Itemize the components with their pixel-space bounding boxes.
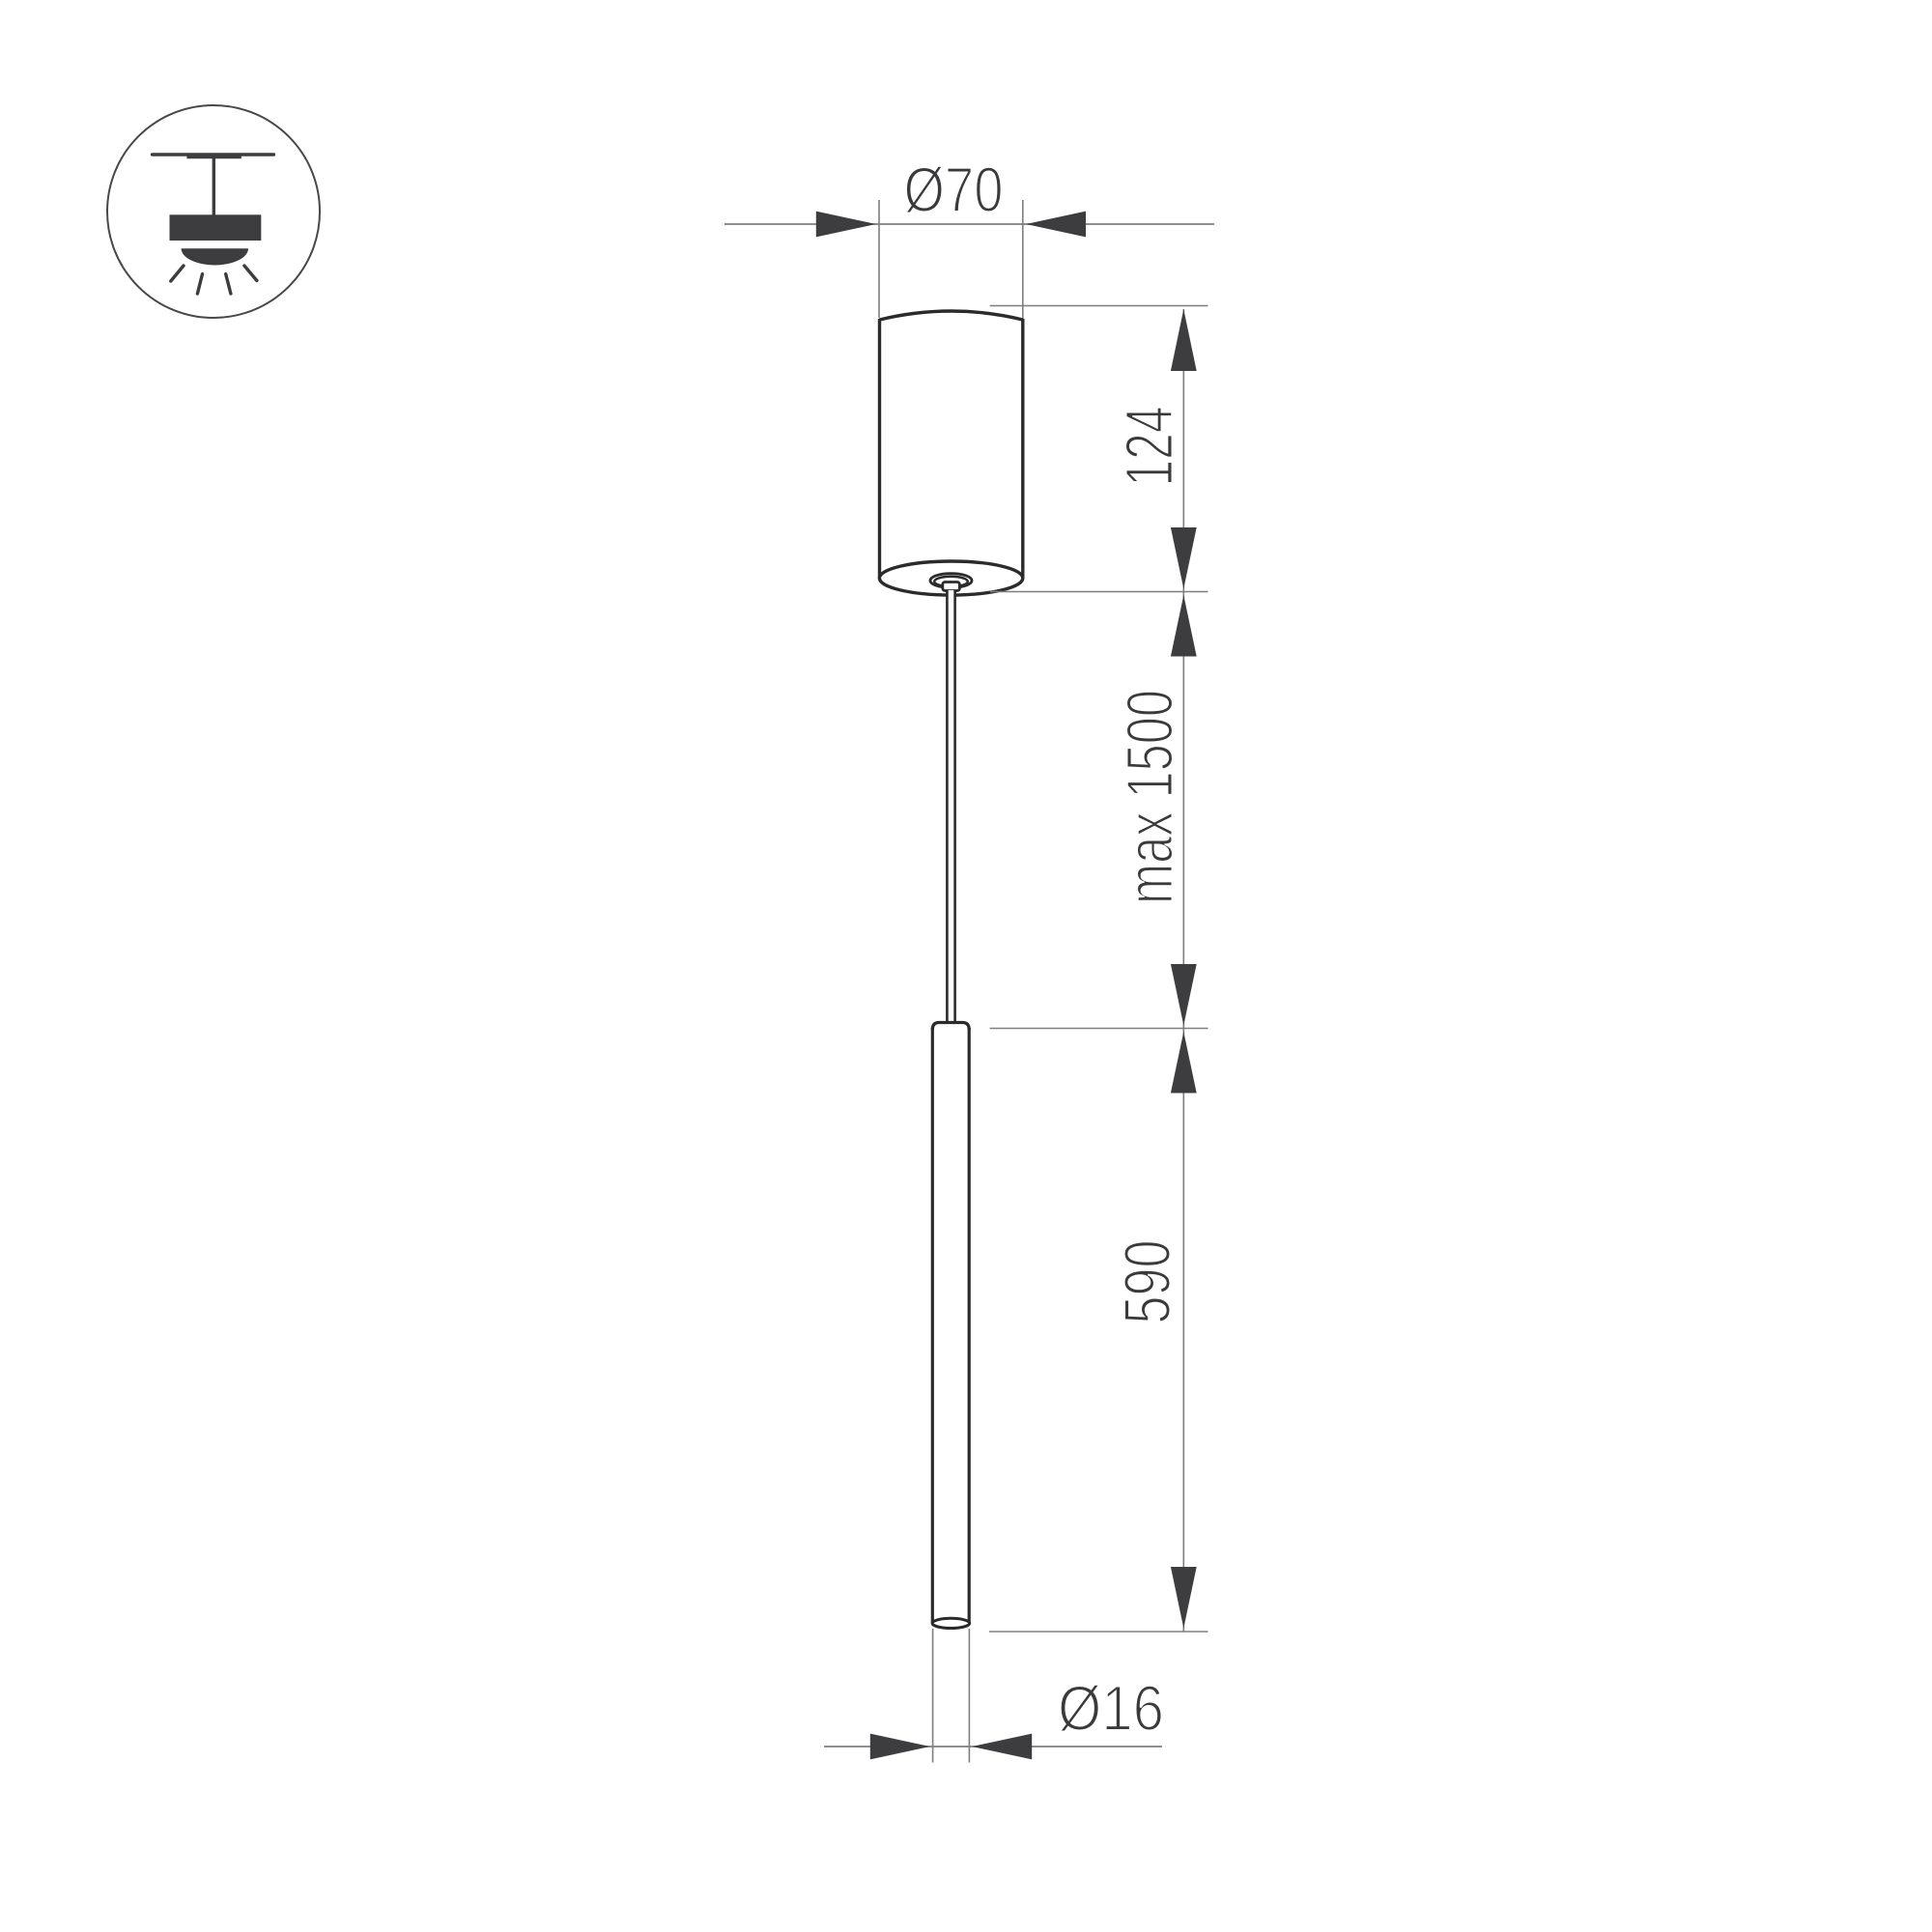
svg-text:124: 124 (1112, 407, 1187, 487)
svg-text:590: 590 (1111, 1240, 1184, 1324)
svg-text:max 1500: max 1500 (1114, 690, 1187, 904)
svg-text:Ø16: Ø16 (1058, 1672, 1164, 1744)
svg-text:Ø70: Ø70 (904, 154, 1004, 225)
